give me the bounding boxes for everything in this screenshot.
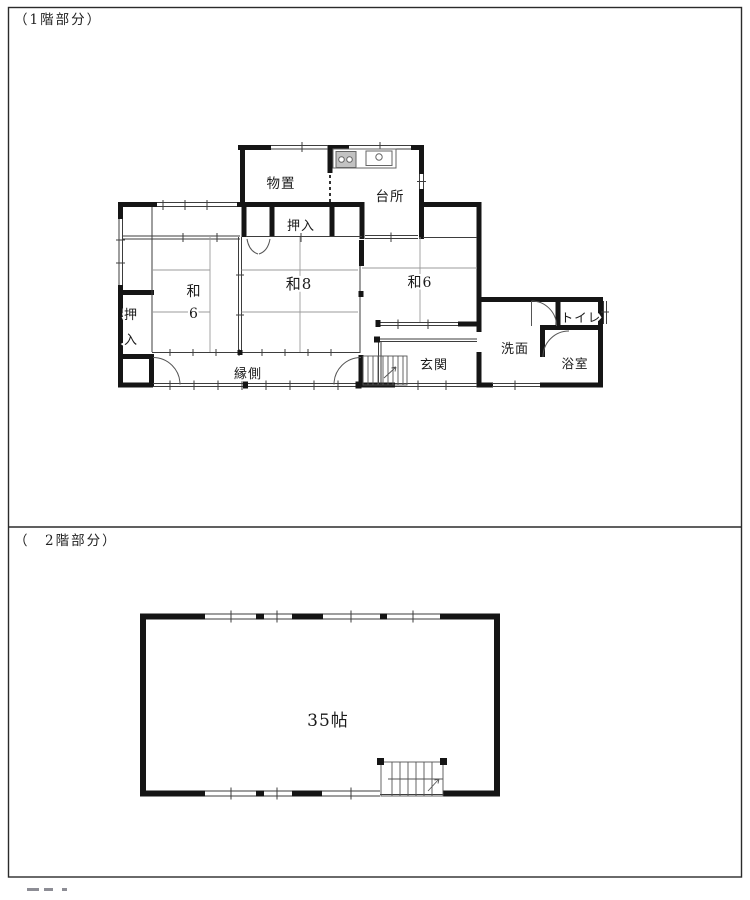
floor1-stairs: [363, 356, 407, 385]
floor2-stairs: [377, 758, 447, 796]
room-label-entrance: 玄関: [420, 358, 448, 373]
section-borders: [9, 8, 742, 878]
room-label-closet-left-2: 入: [124, 333, 138, 348]
kitchen-counter: [333, 149, 396, 168]
floor1-plan: 物置 台所 押入 押 入 和 6 和8 和6 縁側 玄関 洗面 トイレ 浴室: [116, 142, 609, 390]
section1-label: （1階部分）: [14, 12, 102, 28]
room-label-kitchen: 台所: [376, 189, 405, 205]
floor2-room-size-label: 35帖: [307, 711, 349, 731]
room-label-washitsu6-left-2: 6: [189, 306, 199, 322]
floor2-plan: 35帖: [140, 611, 500, 800]
room-label-closet-top: 押入: [287, 219, 315, 234]
floor2-walls: [140, 614, 500, 797]
room-label-storage: 物置: [267, 176, 296, 192]
section2-label: （ 2階部分）: [14, 533, 118, 549]
cropped-footer-text-fragment: [27, 888, 67, 891]
room-label-washitsu6-left-1: 和: [187, 284, 202, 300]
floor2-labels: 35帖: [307, 711, 349, 731]
room-label-washroom: 洗面: [501, 342, 529, 357]
room-label-washitsu8: 和8: [286, 275, 313, 293]
floorplan-document: （1階部分） （ 2階部分）: [0, 0, 750, 900]
floor2-windows: [205, 611, 443, 800]
room-label-closet-left-1: 押: [124, 308, 138, 323]
room-label-bath: 浴室: [561, 356, 588, 371]
room-label-washitsu6-right: 和6: [408, 275, 433, 291]
room-label-toilet: トイレ: [561, 310, 602, 325]
room-label-engawa: 縁側: [234, 366, 262, 382]
floorplan-drawing: （1階部分） （ 2階部分）: [0, 0, 750, 900]
